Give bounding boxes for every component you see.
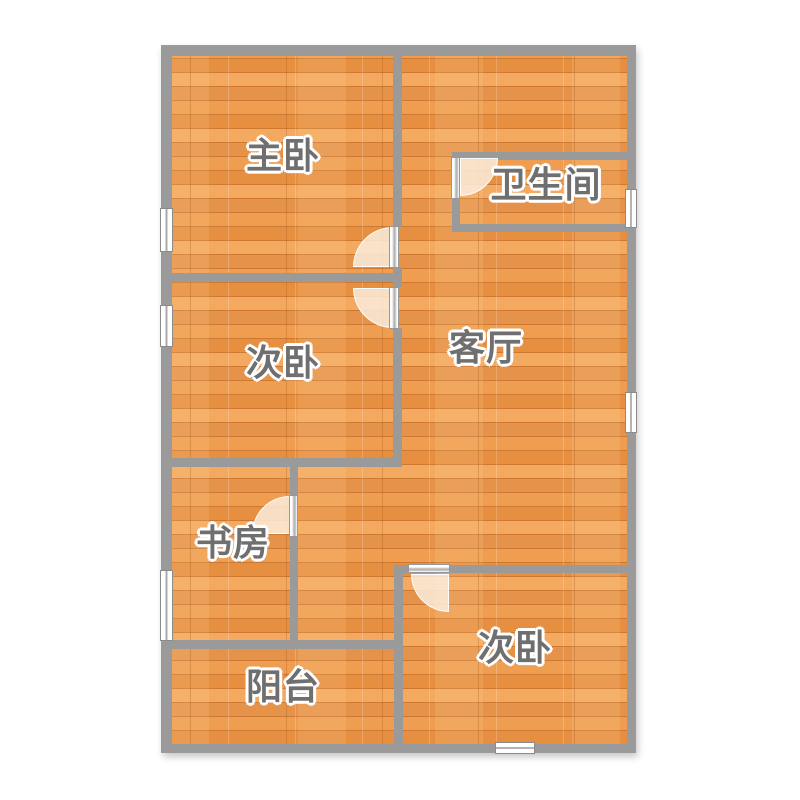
wall-balcony-top (172, 640, 403, 649)
room-label-second-bedroom-2: 次卧 (478, 619, 552, 671)
window-bedroom3 (495, 742, 535, 754)
room-label-second-bedroom: 次卧 (246, 334, 320, 386)
wall-bedroom3-top-right (448, 565, 627, 573)
wall-main-vertical-lower (393, 328, 402, 467)
wall-bedroom2-study (172, 458, 402, 467)
wall-bathroom-left-lower (452, 197, 460, 232)
wall-outer-bottom (161, 744, 636, 753)
wall-master-bedroom2 (172, 273, 402, 282)
window-bathroom (625, 189, 637, 228)
wall-outer-left (161, 45, 172, 753)
door-panel-bedroom3 (408, 564, 450, 573)
window-bedroom2 (160, 305, 173, 347)
wall-bathroom-bottom (452, 224, 627, 232)
room-label-balcony: 阳台 (246, 658, 320, 710)
door-panel-bedroom2 (389, 287, 399, 329)
wall-main-vertical-mid (393, 267, 402, 287)
room-label-living-room: 客厅 (449, 319, 523, 371)
door-panel-study (289, 495, 298, 537)
door-swing-master-bedroom (353, 227, 393, 267)
door-swing-bedroom2 (353, 288, 393, 328)
window-master-bedroom (160, 208, 173, 252)
room-label-master-bedroom: 主卧 (246, 127, 320, 179)
door-panel-master-bedroom (389, 226, 399, 268)
wall-outer-top (161, 45, 636, 56)
window-study (160, 570, 173, 641)
wall-main-vertical-upper (393, 56, 402, 227)
floor-plan: 主卧 卫生间 次卧 客厅 书房 次卧 阳台 (161, 45, 636, 753)
window-living-room (625, 392, 637, 433)
door-swing-bedroom3 (411, 574, 449, 612)
room-label-bathroom: 卫生间 (490, 156, 601, 208)
room-label-study: 书房 (196, 514, 270, 566)
wall-bedroom3-left (394, 565, 403, 744)
door-panel-bathroom (451, 157, 460, 199)
